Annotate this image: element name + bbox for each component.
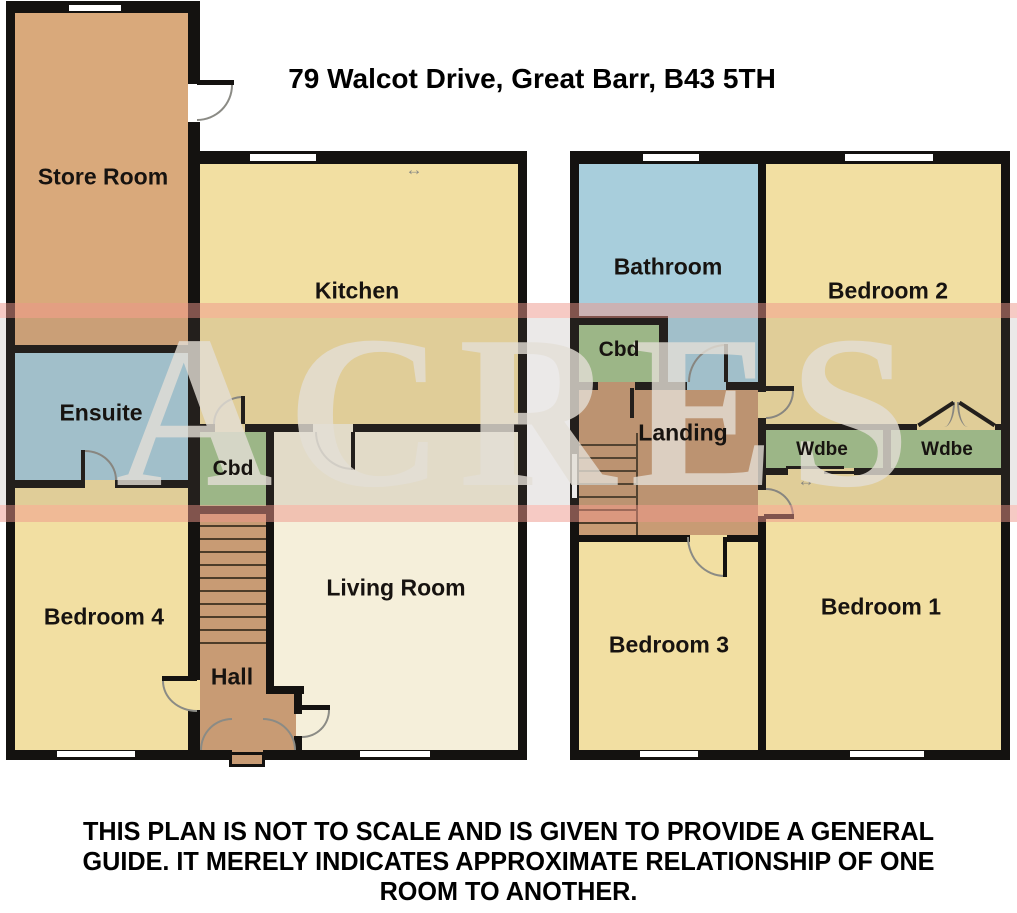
cbd-first-label: Cbd [599, 338, 640, 362]
hall-living-wall-top [266, 686, 304, 694]
living-room-window [358, 749, 432, 759]
store-door-arc [197, 85, 233, 121]
living-room-label: Living Room [326, 575, 465, 602]
bathroom-label: Bathroom [614, 254, 723, 281]
hall-label: Hall [211, 664, 253, 691]
kitchen-window [248, 152, 318, 163]
bedroom-3-window [638, 749, 700, 759]
bedroom-1-window [848, 749, 926, 759]
store-room-window [67, 3, 123, 13]
page-title: 79 Walcot Drive, Great Barr, B43 5TH [288, 63, 776, 95]
store-door-leaf [197, 80, 234, 85]
bedroom-4-label: Bedroom 4 [44, 604, 164, 631]
hall-living-door-leaf [302, 705, 330, 710]
watermark-text: ACRES [116, 288, 925, 538]
hall-living-wall-upper [294, 694, 302, 714]
kitchen-label: Kitchen [315, 278, 399, 305]
sliding-arrow-icon: ↔ [406, 160, 423, 180]
landing-label: Landing [638, 420, 727, 447]
bedroom4-door-leaf [162, 676, 197, 681]
disclaimer-text: THIS PLAN IS NOT TO SCALE AND IS GIVEN T… [15, 816, 1001, 906]
cbd-ground-label: Cbd [213, 457, 254, 481]
front-door-leaf [229, 752, 265, 767]
wardrobe-left-label: Wdbe [796, 439, 848, 461]
ensuite-label: Ensuite [59, 400, 142, 427]
bedroom3-door-leaf [723, 537, 727, 577]
bedroom-1-label: Bedroom 1 [821, 594, 941, 621]
bedroom-2-label: Bedroom 2 [828, 278, 948, 305]
bathroom-window [641, 152, 701, 163]
bedroom-4-window [55, 749, 137, 759]
bedroom-3-label: Bedroom 3 [609, 632, 729, 659]
wardrobe-right-label: Wdbe [921, 439, 973, 461]
floor-plan: ↔ [0, 0, 1017, 913]
store-room-label: Store Room [38, 164, 168, 191]
bedroom-2-window [843, 152, 935, 163]
